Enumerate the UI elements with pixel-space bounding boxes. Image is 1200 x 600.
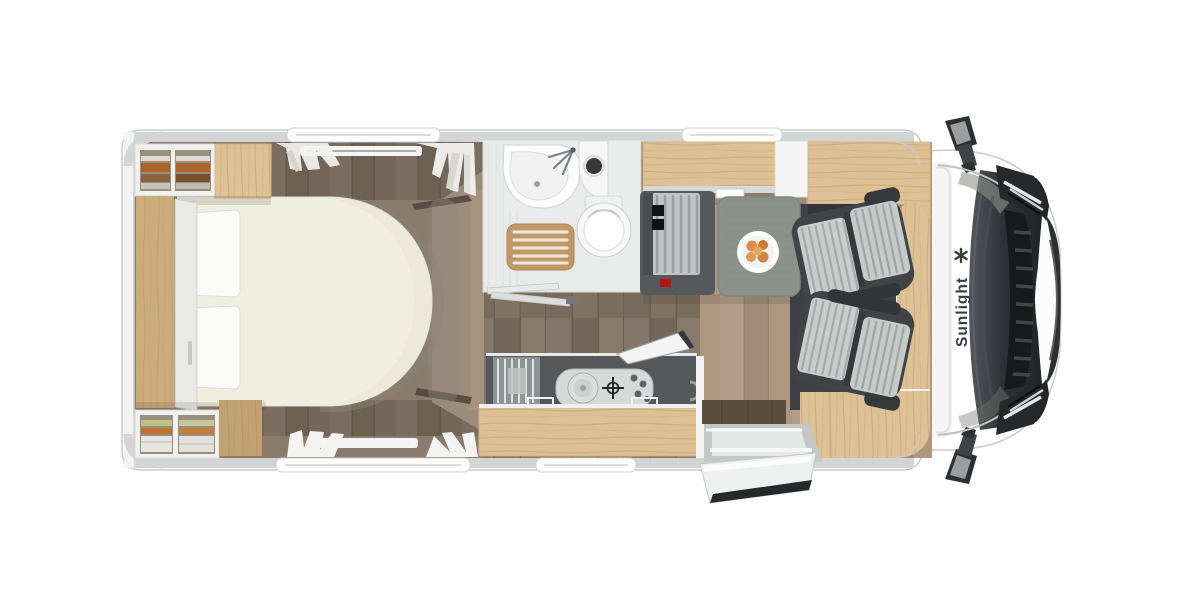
svg-text:Sunlight: Sunlight <box>954 277 971 347</box>
